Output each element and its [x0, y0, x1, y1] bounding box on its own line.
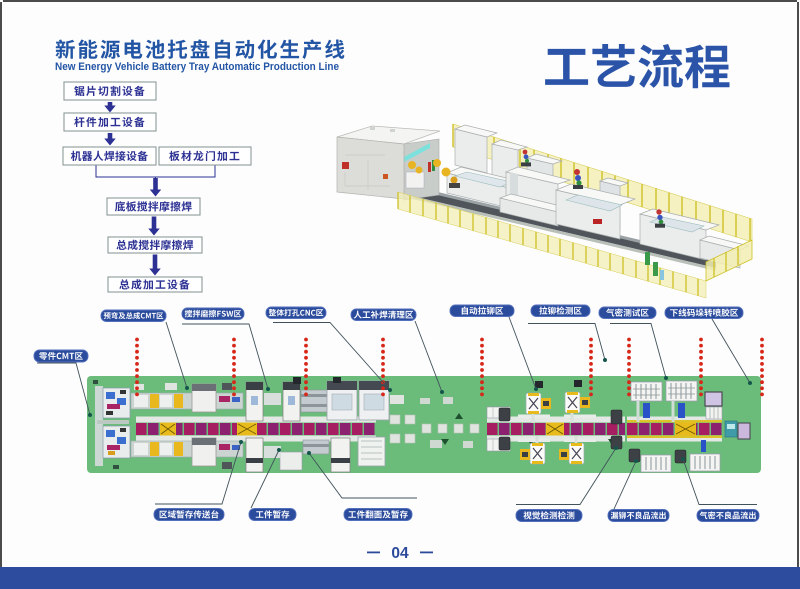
svg-text:04: 04	[391, 545, 409, 562]
svg-text:New Energy Vehicle Battery Tra: New Energy Vehicle Battery Tray Automati…	[55, 61, 339, 73]
